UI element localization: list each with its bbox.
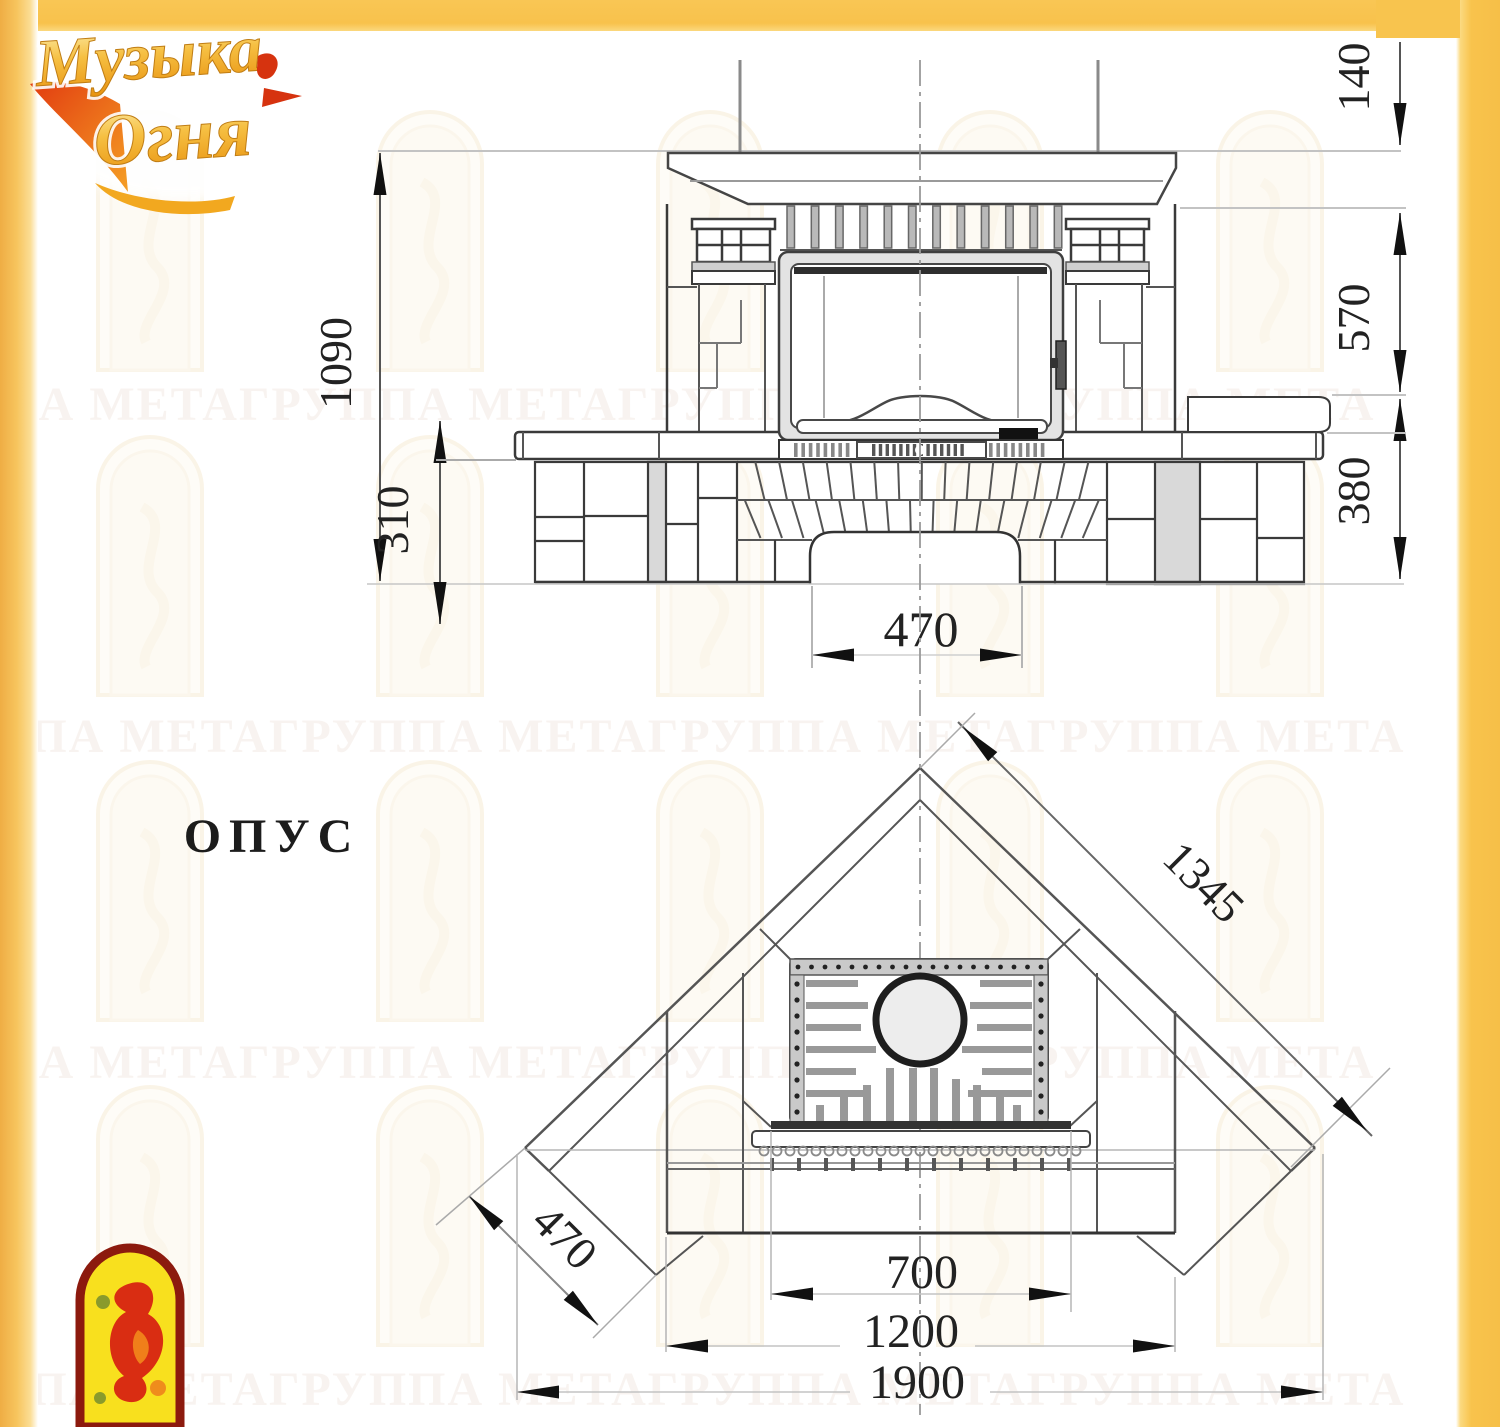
svg-text:570: 570 bbox=[1328, 284, 1379, 353]
svg-text:1200: 1200 bbox=[863, 1305, 959, 1358]
svg-text:ППА МЕТАГРУППА МЕТАГРУППА МЕТА: ППА МЕТАГРУППА МЕТАГРУППА МЕТАГРУППА МЕТ… bbox=[0, 1036, 1375, 1089]
svg-text:1090: 1090 bbox=[310, 317, 361, 409]
svg-text:Музыка: Музыка bbox=[32, 11, 264, 101]
svg-text:ОПУС: ОПУС bbox=[184, 810, 361, 863]
svg-text:ППА МЕТАГРУППА МЕТАГРУППА МЕТА: ППА МЕТАГРУППА МЕТАГРУППА МЕТАГРУППА МЕТ… bbox=[0, 378, 1375, 431]
svg-text:310: 310 bbox=[367, 486, 418, 555]
svg-text:ППА МЕТАГРУППА МЕТАГРУППА МЕТА: ППА МЕТАГРУППА МЕТАГРУППА МЕТАГРУППА МЕТ… bbox=[0, 1363, 1405, 1416]
svg-text:470: 470 bbox=[884, 601, 959, 657]
svg-text:Огня: Огня bbox=[91, 90, 254, 182]
svg-text:1900: 1900 bbox=[869, 1356, 965, 1409]
svg-text:ППА МЕТАГРУППА МЕТАГРУППА МЕТА: ППА МЕТАГРУППА МЕТАГРУППА МЕТАГРУППА МЕТ… bbox=[0, 710, 1405, 763]
svg-text:700: 700 bbox=[886, 1246, 958, 1299]
svg-text:140: 140 bbox=[1328, 43, 1379, 112]
svg-text:380: 380 bbox=[1328, 457, 1379, 526]
